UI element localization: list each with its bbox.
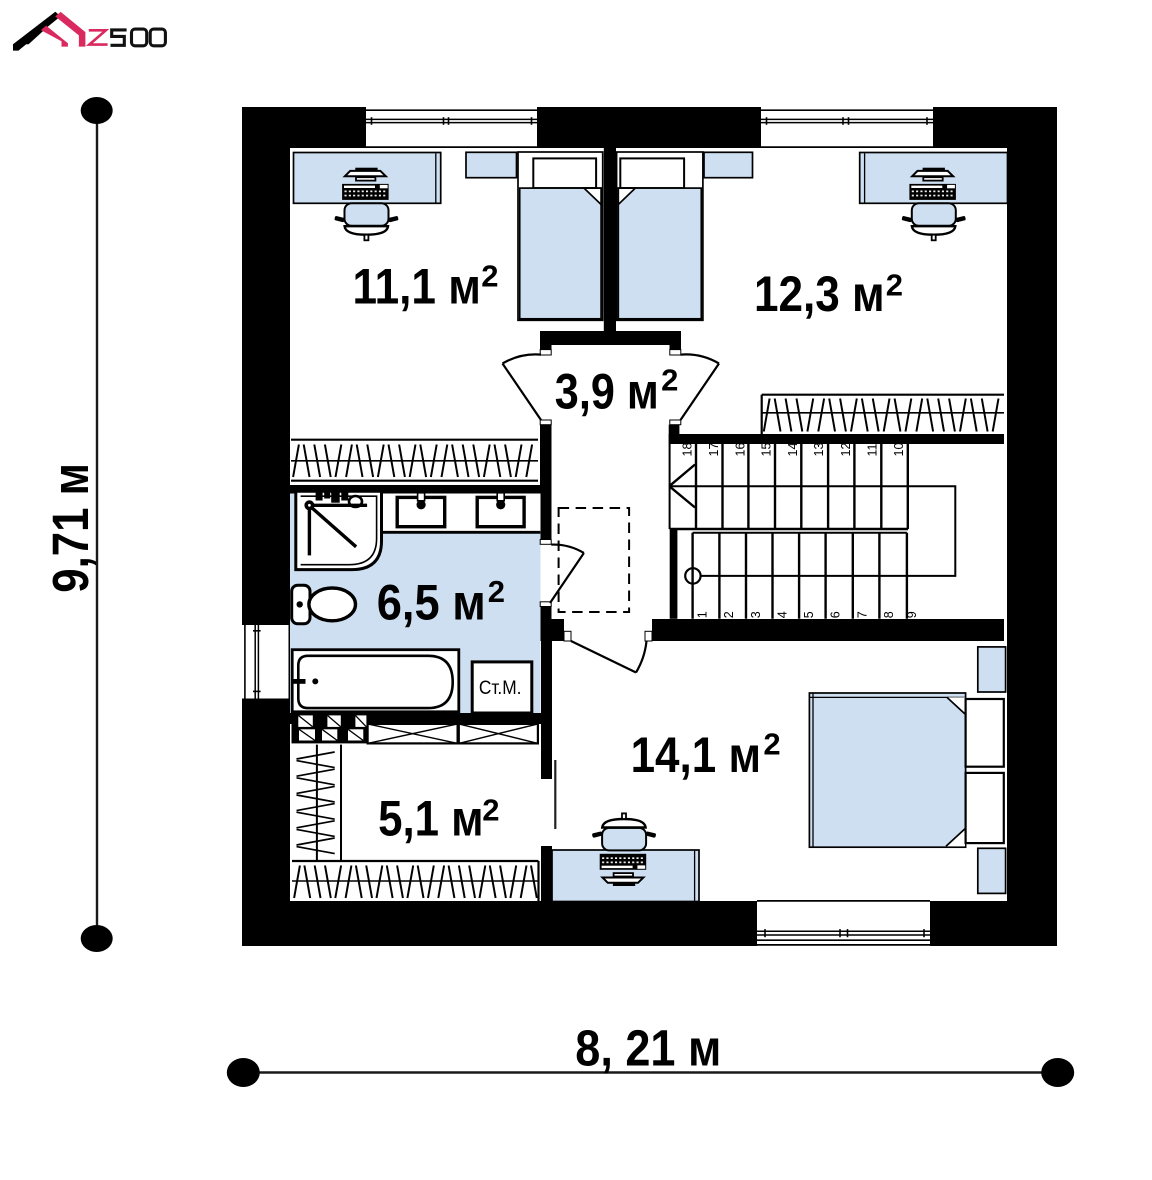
svg-text:2: 2 [488,574,505,609]
svg-text:17: 17 [707,443,721,457]
svg-text:13: 13 [812,443,826,457]
svg-text:18: 18 [680,443,694,457]
svg-text:5: 5 [802,611,816,618]
svg-text:3: 3 [749,611,763,618]
svg-text:8: 8 [882,611,896,618]
svg-text:6: 6 [828,611,842,618]
svg-text:7: 7 [856,611,870,618]
svg-text:2: 2 [661,363,678,398]
svg-text:10: 10 [892,443,906,457]
svg-text:2: 2 [482,792,499,827]
svg-text:9,71 м: 9,71 м [42,463,99,593]
svg-text:5,1 м: 5,1 м [378,790,484,846]
svg-text:6,5 м: 6,5 м [377,574,486,630]
svg-text:12,3 м: 12,3 м [754,266,885,322]
svg-text:9: 9 [905,611,919,618]
svg-text:2: 2 [481,259,498,294]
svg-text:2: 2 [763,727,780,762]
svg-text:14: 14 [786,443,800,457]
svg-text:8, 21 м: 8, 21 м [575,1019,721,1076]
svg-text:4: 4 [775,611,789,618]
svg-text:16: 16 [733,443,747,457]
svg-text:Ст.М.: Ст.М. [479,677,522,699]
svg-text:15: 15 [759,443,773,457]
svg-text:1: 1 [695,611,709,618]
svg-text:14,1 м: 14,1 м [631,727,761,783]
svg-text:2: 2 [886,267,903,302]
svg-text:3,9 м: 3,9 м [555,363,659,419]
svg-text:11,1 м: 11,1 м [353,259,481,315]
svg-text:11: 11 [865,443,879,456]
svg-text:2: 2 [722,611,736,618]
svg-text:12: 12 [839,443,853,457]
